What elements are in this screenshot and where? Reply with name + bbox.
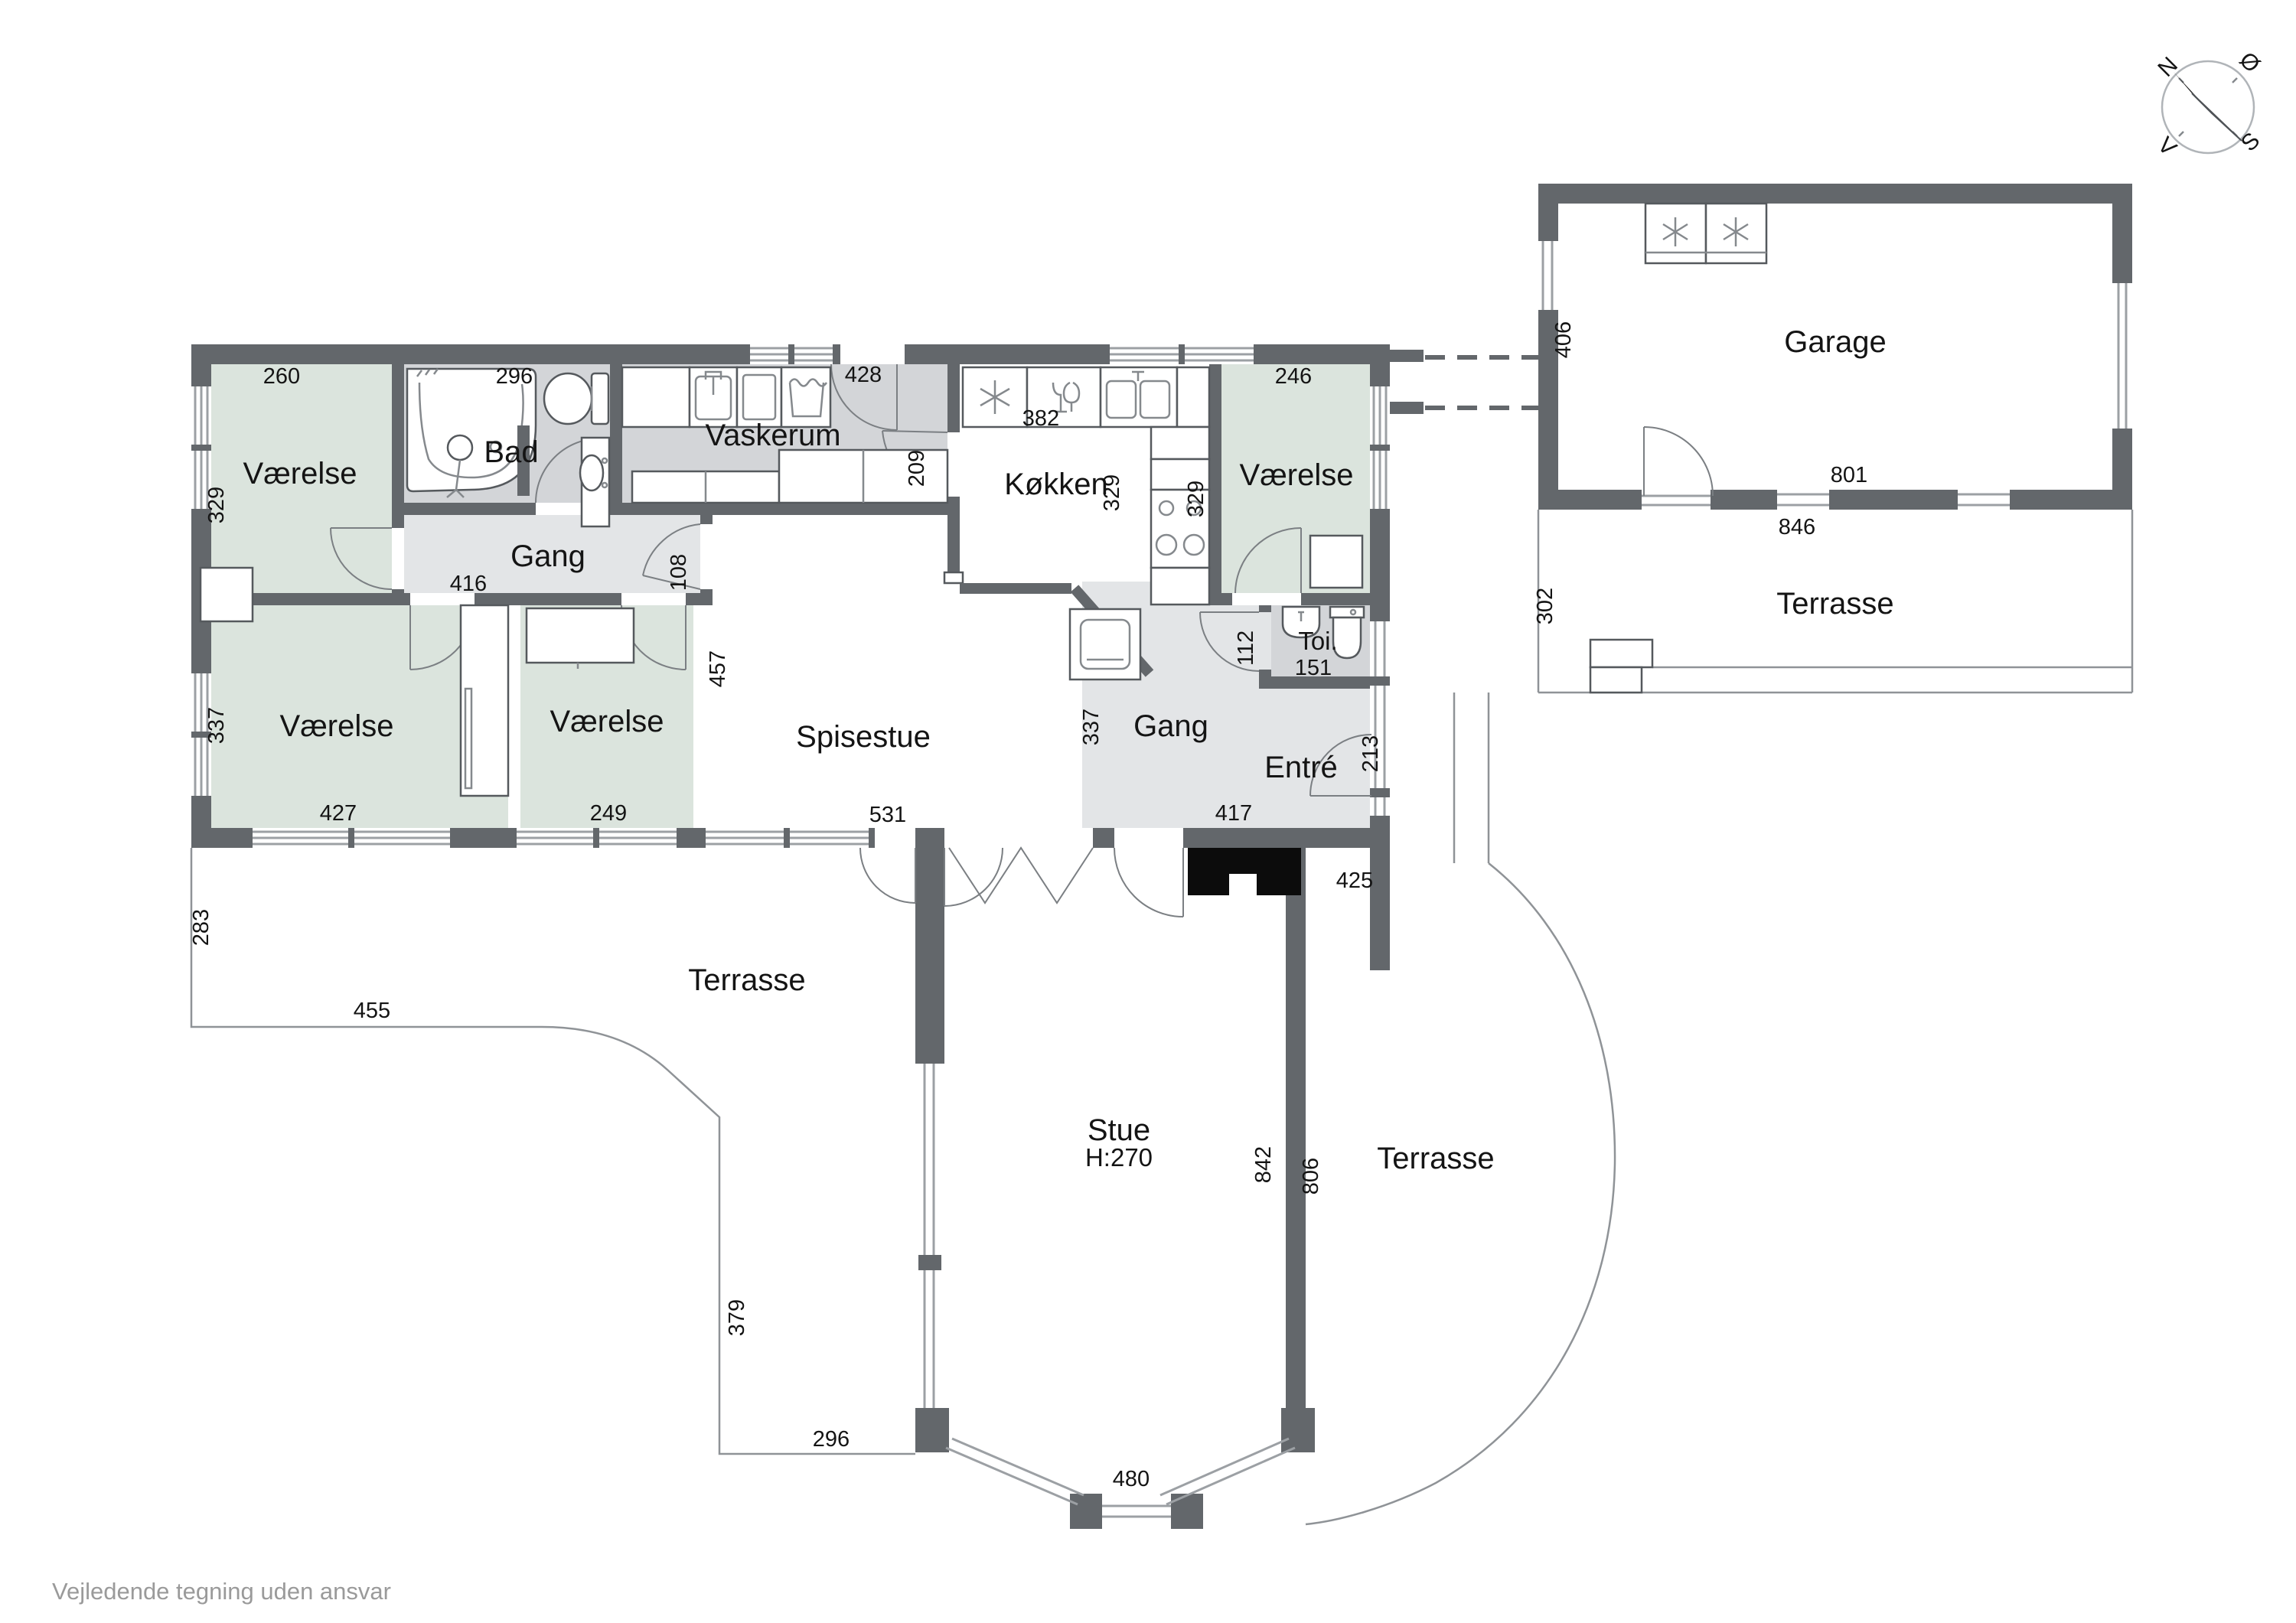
room-label-vaerelse-bl: Værelse bbox=[280, 709, 394, 743]
dim-terrasse-left-edge: 379 bbox=[725, 1299, 749, 1336]
window bbox=[706, 828, 869, 848]
floor-plan-page: 480 bbox=[0, 0, 2296, 1623]
window bbox=[1777, 490, 1829, 510]
sink-icon bbox=[580, 438, 609, 526]
terrace-step-lower bbox=[1590, 667, 1642, 693]
dim-vaerelse-tr-height: 329 bbox=[1184, 481, 1208, 517]
room-label-stue: Stue bbox=[1088, 1113, 1150, 1147]
wardrobe-column bbox=[461, 605, 508, 796]
terrace-left-outline bbox=[191, 848, 915, 1454]
room-label-vaerelse-tr: Værelse bbox=[1240, 458, 1354, 492]
room-label-spisestue: Spisestue bbox=[796, 720, 931, 754]
dim-terrasse-left-south: 296 bbox=[813, 1427, 850, 1452]
dim-bad-width: 296 bbox=[496, 364, 533, 389]
dim-vaskerum-opening: 209 bbox=[905, 450, 929, 487]
dim-entre-door: 213 bbox=[1358, 735, 1383, 772]
dim-koekken-width: 382 bbox=[1022, 406, 1059, 431]
dim-spisestue-width: 531 bbox=[869, 803, 906, 827]
room-label-vaerelse-bm: Værelse bbox=[550, 705, 664, 738]
window bbox=[920, 1064, 940, 1408]
freezer-icons bbox=[1645, 204, 1766, 263]
terrace-label-south: Terrasse bbox=[1377, 1142, 1494, 1175]
dim-vaerelse-tl-height: 329 bbox=[204, 487, 229, 523]
dim-spisestue-height: 457 bbox=[706, 650, 730, 687]
dim-gang-top-door: 108 bbox=[667, 554, 691, 591]
window bbox=[1370, 386, 1390, 509]
disclaimer-text: Vejledende tegning uden ansvar bbox=[52, 1578, 391, 1605]
compass-south-label: S bbox=[2236, 128, 2265, 156]
dim-garage-south: 846 bbox=[1779, 515, 1815, 539]
dim-toilet-height: 112 bbox=[1234, 631, 1258, 666]
dim-vaerelse-tl-width: 260 bbox=[263, 364, 300, 389]
dim-vaerelse-tr-width: 246 bbox=[1275, 364, 1312, 389]
door-spisestue-terrasse bbox=[860, 848, 915, 903]
dim-gang-top-width: 416 bbox=[450, 572, 487, 596]
toilet-tank-icon bbox=[1330, 607, 1364, 618]
terrace-step-upper bbox=[1590, 640, 1652, 667]
dim-garage-height: 406 bbox=[1551, 321, 1576, 358]
room-ceiling-stue: H:270 bbox=[1085, 1143, 1153, 1172]
dim-vaskerum-door: 428 bbox=[845, 363, 882, 387]
dim-garage-width: 801 bbox=[1831, 463, 1867, 487]
toilet-icon bbox=[544, 373, 608, 424]
dim-vaerelse-bl-width: 427 bbox=[320, 801, 357, 826]
dim-stue-height: 842 bbox=[1251, 1146, 1276, 1183]
terrace-label-left: Terrasse bbox=[688, 963, 805, 997]
terrace-south-curve bbox=[1306, 863, 1615, 1524]
room-label-koekken: Køkken bbox=[1004, 468, 1108, 501]
dim-gang-right-height: 337 bbox=[1079, 709, 1104, 745]
garage-door bbox=[2118, 283, 2126, 429]
room-label-garage: Garage bbox=[1784, 325, 1886, 359]
room-label-bad: Bad bbox=[484, 435, 538, 469]
dim-gang-right-width: 417 bbox=[1215, 801, 1252, 826]
dim-koekken-height: 329 bbox=[1100, 474, 1124, 511]
dim-toilet-width: 151 bbox=[1295, 656, 1332, 680]
dim-terrasse-left-width: 455 bbox=[354, 999, 390, 1023]
window bbox=[517, 828, 677, 848]
window bbox=[1370, 621, 1390, 676]
window bbox=[1110, 344, 1254, 364]
dim-terrasse-south-height: 806 bbox=[1299, 1158, 1323, 1194]
room-label-vaerelse-tl: Værelse bbox=[243, 457, 357, 490]
floor-plan-drawing: 480 bbox=[0, 0, 2296, 1623]
dim-stue-bay: 480 bbox=[1113, 1467, 1150, 1491]
room-floor-spisestue bbox=[713, 507, 1082, 828]
dim-vaerelse-bl-height: 337 bbox=[204, 707, 229, 744]
window bbox=[253, 828, 450, 848]
kitchen-counter bbox=[963, 367, 1209, 427]
window bbox=[1958, 490, 2010, 510]
wardrobe-left-wall bbox=[201, 568, 253, 621]
compass-west-label: V bbox=[2153, 132, 2181, 161]
dim-terrasse-garage-height: 302 bbox=[1533, 588, 1557, 624]
terrace-label-garage: Terrasse bbox=[1776, 587, 1893, 621]
room-label-entre: Entré bbox=[1264, 751, 1338, 784]
dim-vaerelse-bm-width: 249 bbox=[590, 801, 627, 826]
dim-terrasse-south-west: 425 bbox=[1336, 869, 1373, 893]
room-label-toilet: Toi. bbox=[1298, 627, 1337, 655]
compass: N Ø S V bbox=[2153, 47, 2265, 161]
room-label-gang-right: Gang bbox=[1133, 709, 1208, 743]
carport-connection bbox=[1390, 350, 1538, 414]
window bbox=[1538, 241, 1558, 310]
cabinet-vaerelse-bm bbox=[527, 608, 634, 663]
window bbox=[750, 344, 833, 364]
room-label-vaskerum: Vaskerum bbox=[705, 419, 840, 452]
room-label-gang-top: Gang bbox=[510, 539, 585, 573]
dim-terrasse-left-height: 283 bbox=[189, 909, 214, 946]
cabinet-vaerelse-tr bbox=[1310, 536, 1362, 588]
